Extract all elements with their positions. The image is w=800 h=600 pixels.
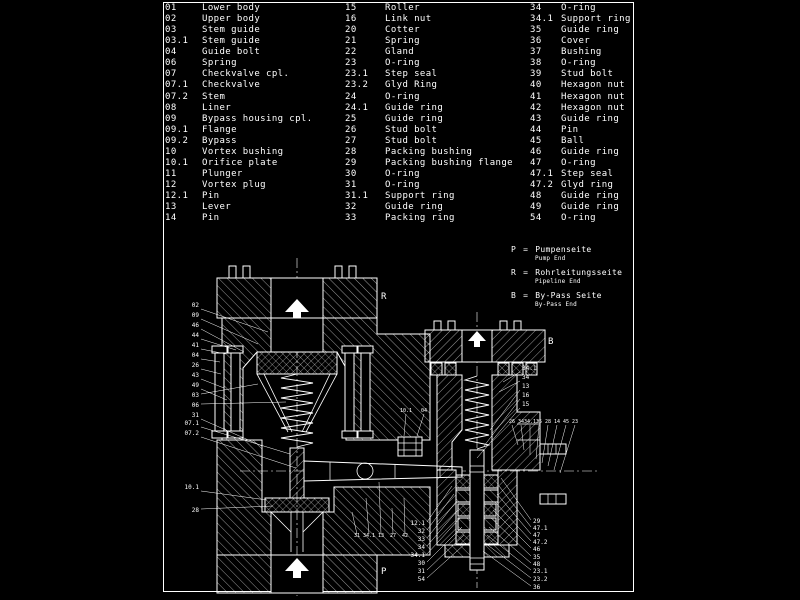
callout-label: 34.1 bbox=[522, 365, 537, 372]
callout-label: 30 bbox=[418, 560, 426, 567]
callout-label: 43 bbox=[192, 372, 200, 379]
callout-label: 36 bbox=[533, 584, 541, 591]
top-stud-bolts bbox=[229, 266, 356, 278]
callout-label: 12.1 bbox=[411, 520, 426, 527]
bypass-stud-bolts bbox=[434, 321, 521, 330]
callout-label: 34.1 bbox=[363, 533, 375, 539]
callout-label: 48 bbox=[533, 561, 541, 568]
callout-label: 06 bbox=[192, 402, 200, 409]
callout-label: 23.2 bbox=[533, 576, 548, 583]
callout-label: 07.2 bbox=[185, 430, 200, 437]
callout-label: 13 bbox=[522, 383, 530, 390]
callout-label: 10.1 bbox=[400, 408, 412, 414]
callout-label: 41 bbox=[192, 342, 200, 349]
callout-label: 27 bbox=[390, 533, 396, 539]
upper-body-section bbox=[323, 318, 430, 440]
callout-label: 34.1 bbox=[411, 552, 426, 559]
callout-label: 15 bbox=[522, 401, 530, 408]
callout-label: 04 bbox=[192, 352, 200, 359]
packing-box bbox=[265, 498, 329, 512]
cover-stud-bolt bbox=[540, 494, 566, 504]
callout-label: 35 bbox=[536, 419, 542, 425]
callout-label: 02 bbox=[192, 302, 200, 309]
callout-label: 28 bbox=[192, 507, 200, 514]
callout-label: 33 bbox=[418, 536, 426, 543]
callout-label: 44 bbox=[192, 332, 200, 339]
callout-label: 42 bbox=[402, 533, 408, 539]
callout-label: 34.1 bbox=[524, 419, 536, 425]
callout-label: 54 bbox=[418, 576, 426, 583]
upper-body-section bbox=[222, 318, 271, 440]
end-marker-b: B bbox=[548, 337, 553, 347]
callout-label: 46 bbox=[533, 546, 541, 553]
callout-label: 03 bbox=[192, 392, 200, 399]
callout-label: 47.2 bbox=[533, 539, 548, 546]
callout-label: 32 bbox=[418, 528, 426, 535]
checkvalve-stem bbox=[290, 448, 304, 498]
orifice-fitting bbox=[398, 437, 422, 456]
callout-label: 23 bbox=[572, 419, 578, 425]
end-marker-p: P bbox=[381, 567, 387, 577]
bypass-housing-section bbox=[437, 375, 462, 470]
callout-label: 45 bbox=[563, 419, 569, 425]
callout-label: 16 bbox=[522, 392, 530, 399]
callout-label: 34 bbox=[522, 374, 530, 381]
callout-label: 28 bbox=[545, 419, 551, 425]
callout-label: 09 bbox=[192, 312, 200, 319]
cad-viewport[interactable]: 01Lower body02Upper body03Stem guide03.1… bbox=[0, 0, 800, 600]
callout-label: 35 bbox=[533, 554, 541, 561]
callout-label: 49 bbox=[192, 382, 200, 389]
callout-label: 14 bbox=[554, 419, 560, 425]
callout-label: 29 bbox=[533, 518, 541, 525]
callout-label: 46 bbox=[192, 322, 200, 329]
callout-label: 47.1 bbox=[533, 525, 548, 532]
callout-label: 23.1 bbox=[533, 568, 548, 575]
callout-label: 26 bbox=[509, 419, 515, 425]
callout-label: 31 bbox=[354, 533, 360, 539]
stem-guide-section bbox=[257, 352, 337, 374]
callout-label: 31 bbox=[192, 412, 200, 419]
callout-label: 47 bbox=[533, 532, 541, 539]
callout-label: 26 bbox=[192, 362, 200, 369]
assembly-drawing: 02094644410426434903063107.107.210.12834… bbox=[0, 0, 800, 600]
callout-label: 07.1 bbox=[185, 420, 200, 427]
callout-label: 13 bbox=[378, 533, 384, 539]
callout-label: 34 bbox=[418, 544, 426, 551]
plunger bbox=[470, 450, 484, 570]
callout-label: 31 bbox=[418, 568, 426, 575]
end-marker-r: R bbox=[381, 292, 387, 302]
callout-label: 04 bbox=[421, 408, 427, 414]
callout-label: 10.1 bbox=[185, 484, 200, 491]
